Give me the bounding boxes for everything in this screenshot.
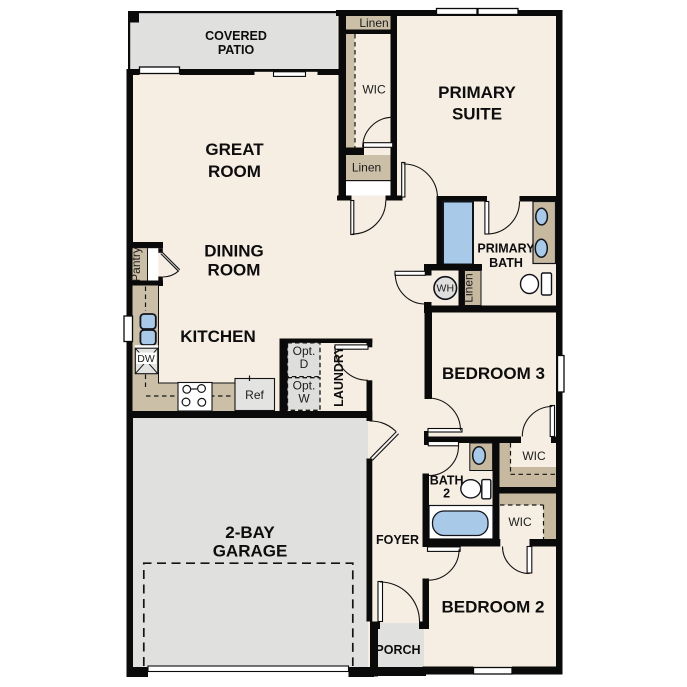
svg-text:Opt.: Opt.	[293, 379, 316, 393]
svg-text:DINING: DINING	[204, 242, 264, 261]
svg-text:D: D	[300, 357, 309, 371]
svg-text:DW: DW	[137, 353, 155, 365]
svg-text:BATH: BATH	[489, 256, 523, 270]
svg-text:WIC: WIC	[508, 515, 532, 529]
svg-text:W: W	[298, 392, 310, 406]
svg-text:Opt.: Opt.	[293, 344, 316, 358]
svg-text:SUITE: SUITE	[452, 105, 502, 124]
svg-text:Linen: Linen	[352, 161, 381, 175]
svg-text:LAUNDRY: LAUNDRY	[332, 346, 346, 407]
svg-text:PORCH: PORCH	[375, 643, 420, 657]
svg-text:PRIMARY: PRIMARY	[438, 83, 516, 102]
svg-text:COVERED: COVERED	[205, 29, 267, 43]
svg-text:2-BAY: 2-BAY	[225, 523, 275, 542]
svg-text:FOYER: FOYER	[376, 533, 419, 547]
svg-text:ROOM: ROOM	[208, 162, 261, 181]
svg-text:GARAGE: GARAGE	[213, 542, 288, 561]
svg-text:Pantry: Pantry	[129, 247, 143, 282]
svg-text:BEDROOM 2: BEDROOM 2	[442, 598, 545, 617]
svg-text:BATH: BATH	[430, 474, 464, 488]
svg-text:Linen: Linen	[359, 16, 388, 30]
svg-text:ROOM: ROOM	[208, 261, 261, 280]
svg-text:WIC: WIC	[362, 83, 386, 97]
svg-text:PRIMARY: PRIMARY	[477, 242, 535, 256]
svg-text:BEDROOM 3: BEDROOM 3	[442, 364, 545, 383]
svg-text:PATIO: PATIO	[218, 43, 255, 57]
svg-text:KITCHEN: KITCHEN	[180, 327, 256, 346]
svg-text:WIC: WIC	[522, 449, 546, 463]
svg-text:2: 2	[443, 487, 450, 501]
svg-text:GREAT: GREAT	[205, 140, 264, 159]
svg-text:Linen: Linen	[462, 273, 476, 302]
svg-text:WH: WH	[437, 283, 455, 295]
svg-text:Ref: Ref	[245, 388, 264, 402]
